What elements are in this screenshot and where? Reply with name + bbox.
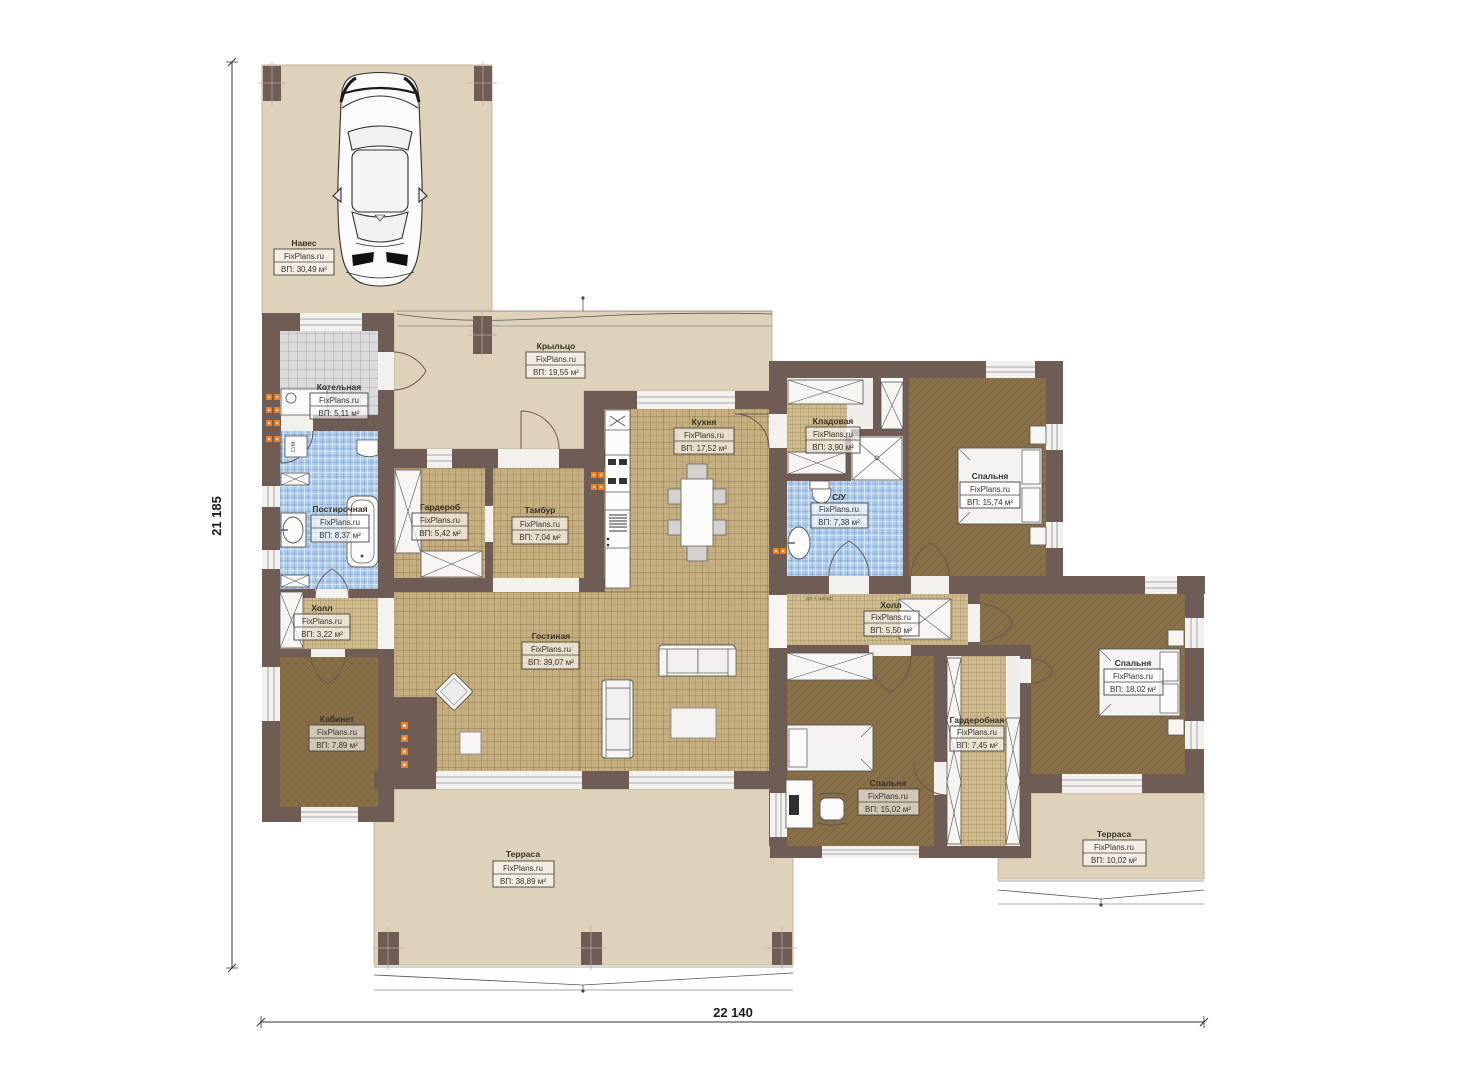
svg-text:ВП: 5,42 м²: ВП: 5,42 м² — [419, 529, 461, 538]
svg-text:FixPlans.ru: FixPlans.ru — [317, 728, 357, 737]
svg-text:FixPlans.ru: FixPlans.ru — [320, 518, 360, 527]
svg-text:ВП: 10,02 м²: ВП: 10,02 м² — [1091, 856, 1137, 865]
svg-text:Гостиная: Гостиная — [532, 631, 570, 641]
svg-text:Гардероб: Гардероб — [420, 502, 460, 512]
svg-text:ВП: 39,07 м²: ВП: 39,07 м² — [528, 658, 574, 667]
svg-text:ВП: 7,45 м²: ВП: 7,45 м² — [956, 741, 998, 750]
svg-text:ВП: 15,02 м²: ВП: 15,02 м² — [865, 805, 911, 814]
svg-text:ВП: 8,37 м²: ВП: 8,37 м² — [319, 531, 361, 540]
svg-text:21 185: 21 185 — [209, 496, 224, 536]
svg-text:Крыльцо: Крыльцо — [537, 341, 576, 351]
svg-text:С/М: С/М — [291, 442, 297, 453]
svg-text:FixPlans.ru: FixPlans.ru — [284, 252, 324, 261]
svg-text:ВП: 5,50 м²: ВП: 5,50 м² — [870, 626, 912, 635]
svg-text:С/У: С/У — [832, 492, 847, 502]
svg-text:Котельная: Котельная — [317, 382, 362, 392]
svg-text:Спальня: Спальня — [972, 471, 1009, 481]
svg-text:FixPlans.ru: FixPlans.ru — [1113, 672, 1153, 681]
svg-text:ВП: 18,02 м²: ВП: 18,02 м² — [1110, 685, 1156, 694]
svg-text:Спальня: Спальня — [1115, 658, 1152, 668]
svg-text:Кладовая: Кладовая — [813, 416, 854, 426]
svg-text:ВП: 5,11 м²: ВП: 5,11 м² — [319, 409, 360, 418]
svg-text:FixPlans.ru: FixPlans.ru — [536, 355, 576, 364]
svg-text:дв + шкаф: дв + шкаф — [806, 596, 833, 602]
svg-text:ВП: 3,22 м²: ВП: 3,22 м² — [301, 630, 343, 639]
svg-text:ВП: 7,89 м²: ВП: 7,89 м² — [316, 741, 358, 750]
svg-text:ВП: 30,49 м²: ВП: 30,49 м² — [281, 265, 327, 274]
svg-text:ВП: 17,52 м²: ВП: 17,52 м² — [681, 444, 727, 453]
svg-text:FixPlans.ru: FixPlans.ru — [970, 485, 1010, 494]
svg-text:FixPlans.ru: FixPlans.ru — [531, 645, 571, 654]
svg-text:ВП: 7,04 м²: ВП: 7,04 м² — [519, 533, 561, 542]
svg-text:Гардеробная: Гардеробная — [950, 715, 1005, 725]
svg-text:FixPlans.ru: FixPlans.ru — [813, 430, 853, 439]
svg-text:Терраса: Терраса — [506, 849, 540, 859]
svg-text:FixPlans.ru: FixPlans.ru — [302, 617, 342, 626]
svg-text:FixPlans.ru: FixPlans.ru — [319, 396, 359, 405]
svg-text:FixPlans.ru: FixPlans.ru — [871, 613, 911, 622]
svg-text:ВП: 3,90 м²: ВП: 3,90 м² — [812, 443, 854, 452]
svg-text:FixPlans.ru: FixPlans.ru — [684, 431, 724, 440]
svg-text:ВП: 15,74 м²: ВП: 15,74 м² — [967, 498, 1013, 507]
svg-text:ВП: 38,89 м²: ВП: 38,89 м² — [500, 877, 546, 886]
svg-text:FixPlans.ru: FixPlans.ru — [957, 728, 997, 737]
svg-text:Терраса: Терраса — [1097, 829, 1131, 839]
svg-text:Кухня: Кухня — [692, 417, 717, 427]
svg-text:22 140: 22 140 — [713, 1005, 753, 1020]
svg-text:Навес: Навес — [291, 238, 317, 248]
svg-text:FixPlans.ru: FixPlans.ru — [420, 516, 460, 525]
svg-text:Кабинет: Кабинет — [320, 714, 354, 724]
svg-text:FixPlans.ru: FixPlans.ru — [819, 505, 859, 514]
svg-text:FixPlans.ru: FixPlans.ru — [868, 792, 908, 801]
svg-text:Постирочная: Постирочная — [312, 504, 367, 514]
svg-text:ВП: 7,38 м²: ВП: 7,38 м² — [818, 518, 860, 527]
svg-text:FixPlans.ru: FixPlans.ru — [503, 864, 543, 873]
svg-text:Тамбур: Тамбур — [525, 505, 556, 515]
svg-text:FixPlans.ru: FixPlans.ru — [1094, 843, 1134, 852]
svg-text:Холл: Холл — [880, 600, 901, 610]
svg-text:ВП: 19,55 м²: ВП: 19,55 м² — [533, 368, 579, 377]
svg-text:Спальня: Спальня — [870, 778, 907, 788]
svg-text:FixPlans.ru: FixPlans.ru — [520, 520, 560, 529]
svg-text:Холл: Холл — [311, 603, 332, 613]
